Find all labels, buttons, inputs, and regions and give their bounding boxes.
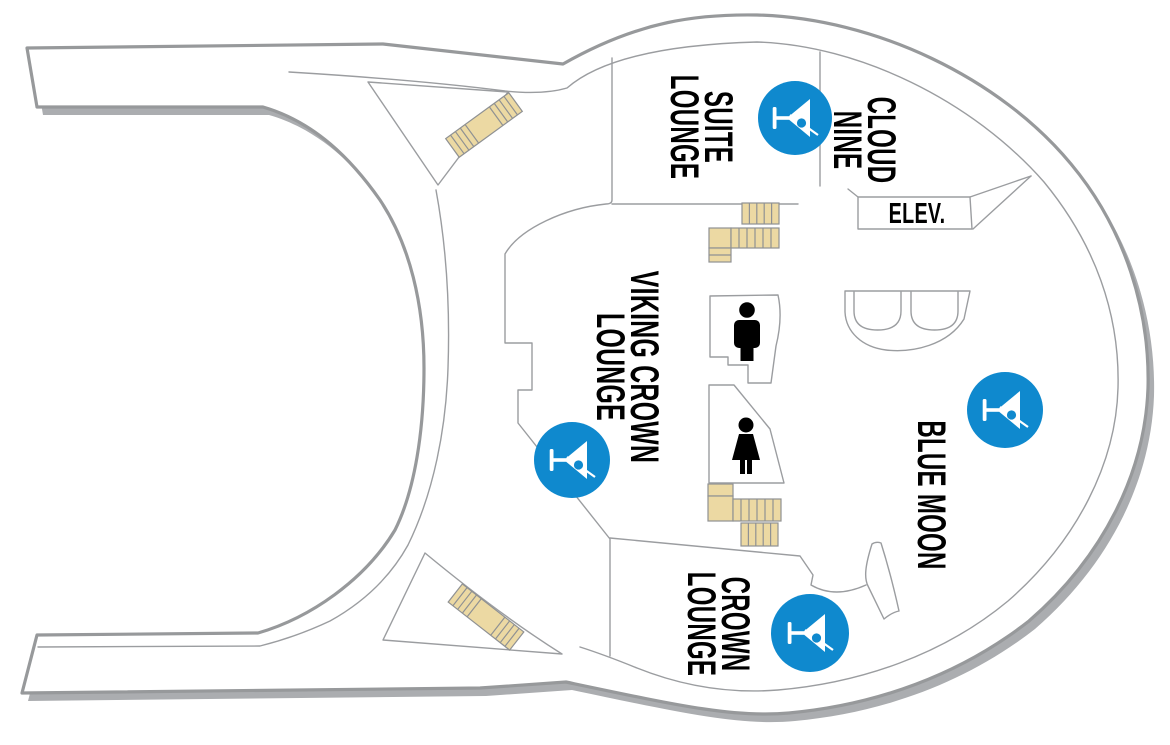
elevator-room: ELEV. bbox=[858, 197, 972, 230]
bar-icon-suite-lounge bbox=[758, 81, 832, 155]
label-blue-moon: BLUE MOON bbox=[910, 420, 955, 569]
elevator-label: ELEV. bbox=[889, 198, 946, 230]
hull-outline bbox=[22, 15, 1148, 714]
blue-moon-line1: BLUE MOON bbox=[910, 420, 955, 569]
stairs bbox=[741, 523, 778, 546]
label-crown-lounge: CROWN LOUNGE bbox=[680, 572, 759, 676]
suite-lounge-line2: LOUNGE bbox=[663, 75, 708, 179]
deck-plan-canvas: ELEV. bbox=[0, 0, 1170, 745]
stairs bbox=[742, 203, 779, 224]
cloud-nine-line2: NINE bbox=[826, 111, 871, 170]
bar-icon-viking-crown-lounge bbox=[534, 422, 610, 498]
stair-landing bbox=[709, 228, 731, 248]
stair-landing bbox=[708, 496, 733, 521]
bar-icon-crown-lounge bbox=[771, 594, 849, 672]
deck-plan: ELEV. bbox=[0, 0, 1170, 745]
viking-crown-lounge-line2: LOUNGE bbox=[587, 313, 631, 421]
bar-icon-blue-moon bbox=[967, 372, 1043, 448]
crown-lounge-line2: LOUNGE bbox=[680, 572, 725, 676]
stair-step bbox=[708, 484, 733, 496]
